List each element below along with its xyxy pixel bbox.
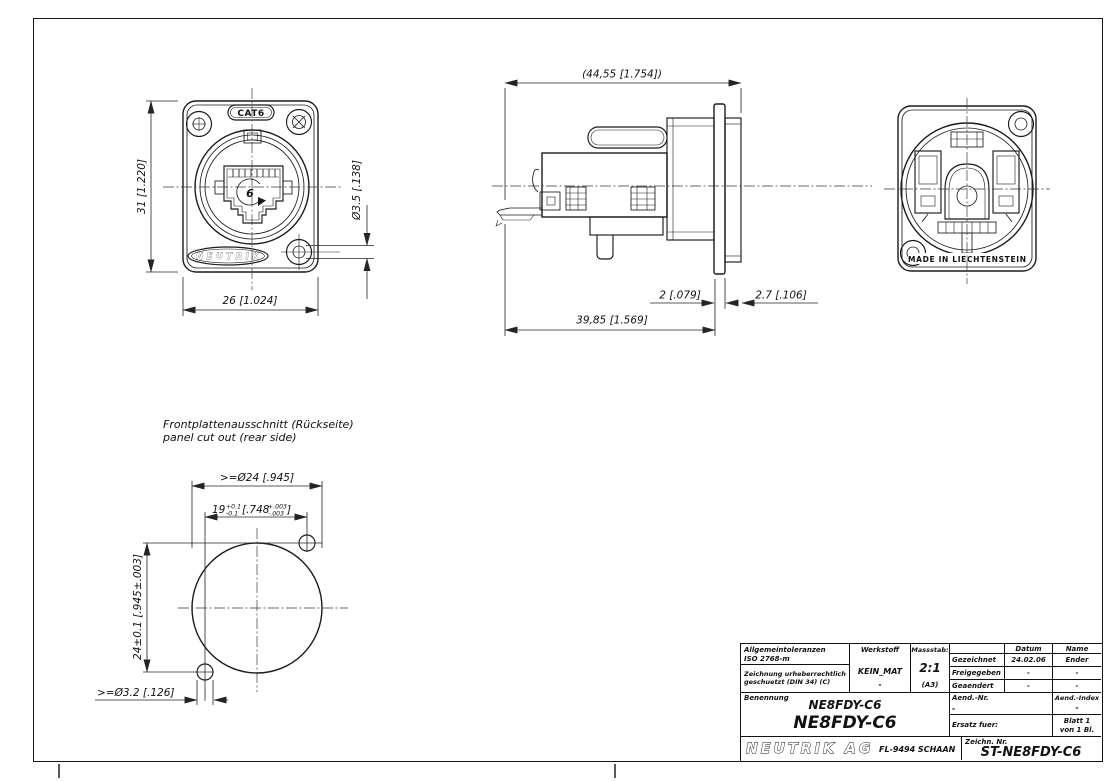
cutout-dim-diameter: >=Ø24 [.945] — [220, 472, 294, 484]
drawing-page: CAT6 6 — [0, 0, 1119, 781]
panel-flange — [714, 104, 725, 274]
werkstoff-label: Werkstoff — [850, 646, 910, 655]
ersatz-label: Ersatz fuer: — [952, 721, 998, 730]
col-header-datum: Datum — [1005, 645, 1052, 654]
massstab-label: Massstab: — [911, 646, 949, 654]
row-freigegeben-datum: - — [1005, 669, 1052, 678]
neutrik-logo: NEUTRIK AG — [745, 740, 877, 758]
cutout-title-de: Frontplattenausschnitt (Rückseite) — [163, 418, 354, 431]
copyright-line2: geschuetzt (DIN 34) (C) — [744, 678, 830, 686]
neutrik-logo-text: NEUTRIK AG — [746, 741, 872, 757]
werkstoff-value2: - — [850, 680, 910, 690]
cutout-dim-spacing-inch: [.748 — [242, 504, 270, 516]
side-dim-overall: (44,55 [1.754]) — [582, 69, 662, 81]
col-header-name: Name — [1053, 645, 1101, 654]
aend-index-value: - — [1053, 703, 1101, 713]
side-dim-flange: 2 [.079] — [659, 290, 701, 302]
row-freigegeben-name: - — [1053, 669, 1101, 678]
crimp-contact — [497, 208, 542, 215]
blatt-line1: Blatt 1 — [1064, 717, 1090, 725]
massstab-value: 2:1 — [911, 661, 949, 677]
side-housing — [542, 153, 667, 217]
row-gezeichnet-name: Ender — [1053, 656, 1101, 665]
drawing-number: ST-NE8FDY-C6 — [961, 745, 1101, 762]
front-dim-hole: Ø3.5 [.138] — [351, 160, 363, 221]
front-dim-height: 31 [1.220] — [136, 159, 148, 214]
cat6-label: CAT6 — [237, 109, 264, 119]
latch-spring-wire — [533, 169, 539, 192]
center-digit: 6 — [246, 187, 254, 200]
cutout-dim-vertical: 24±0.1 [.945±.003] — [132, 554, 144, 660]
blatt-line2: von 1 Bl. — [1060, 726, 1095, 734]
blatt-info: Blatt 1 von 1 Bl. — [1053, 717, 1101, 735]
cutout-title-en: panel cut out (rear side) — [162, 431, 297, 444]
shell-right-section — [667, 118, 714, 240]
rear-bushing — [725, 118, 741, 262]
tolerances-line2: ISO 2768-m — [744, 655, 790, 663]
tolerances-line1: Allgemeintoleranzen — [744, 646, 826, 654]
cutout-dim-spacing-tol-minus: -0.1 — [226, 511, 238, 518]
aend-index-label: Aend.-Index — [1053, 694, 1101, 702]
panel-cutout-view: Frontplattenausschnitt (Rückseite) panel… — [95, 418, 354, 705]
side-dim-depth: 39,85 [1.569] — [576, 315, 648, 327]
massstab-format: (A3) — [911, 681, 949, 690]
cutout-dim-spacing-inch-tol-plus: +.003 — [268, 504, 287, 511]
side-dim-bushing: 2.7 [.106] — [755, 290, 807, 302]
row-gezeichnet-label: Gezeichnet — [952, 656, 996, 665]
mounting-foot — [597, 235, 613, 259]
row-gezeichnet-datum: 24.02.06 — [1005, 656, 1052, 665]
front-dim-width: 26 [1.024] — [223, 295, 278, 307]
rear-hole-topright — [1009, 112, 1034, 137]
aend-nr-value: - — [952, 704, 955, 714]
row-geaendert-name: - — [1053, 682, 1101, 691]
row-geaendert-label: Geaendert — [952, 682, 994, 691]
general-tolerances: Allgemeintoleranzen ISO 2768-m — [744, 646, 826, 664]
copyright-line1: Zeichnung urheberrechtlich — [744, 670, 846, 678]
contact-window-left — [566, 187, 586, 210]
cutout-dim-small-hole: >=Ø3.2 [.126] — [97, 687, 174, 699]
cutout-dim-spacing-inch-tol-minus: -.003 — [268, 511, 284, 518]
cutout-dim-spacing: 19 — [212, 504, 226, 516]
aend-nr-label: Aend.-Nr. — [952, 694, 989, 703]
contact-window-right — [631, 187, 655, 210]
rear-view: MADE IN LIECHTENSTEIN — [884, 98, 1050, 284]
company-address: FL-9494 SCHAAN — [879, 745, 955, 755]
side-view: (44,55 [1.754]) 39,85 [1.569] 2 [.079] 2… — [492, 69, 872, 337]
row-freigegeben-label: Freigegeben — [952, 669, 1001, 678]
cutout-dim-spacing-tol-plus: +0.1 — [226, 504, 241, 511]
row-geaendert-datum: - — [1005, 682, 1052, 691]
copyright-note: Zeichnung urheberrechtlich geschuetzt (D… — [744, 670, 846, 687]
keyway-notch — [244, 130, 261, 143]
title-block: Allgemeintoleranzen ISO 2768-m Zeichnung… — [740, 643, 1103, 762]
cutout-dim-spacing-close: ] — [286, 504, 291, 516]
neutrik-badge-label: NEUTRIK — [196, 252, 260, 262]
front-view: CAT6 6 — [136, 88, 374, 316]
werkstoff-value: KEIN_MAT — [850, 667, 910, 677]
rj45-jack: 6 — [215, 166, 292, 223]
part-name-2: NE8FDY-C6 — [741, 712, 949, 734]
